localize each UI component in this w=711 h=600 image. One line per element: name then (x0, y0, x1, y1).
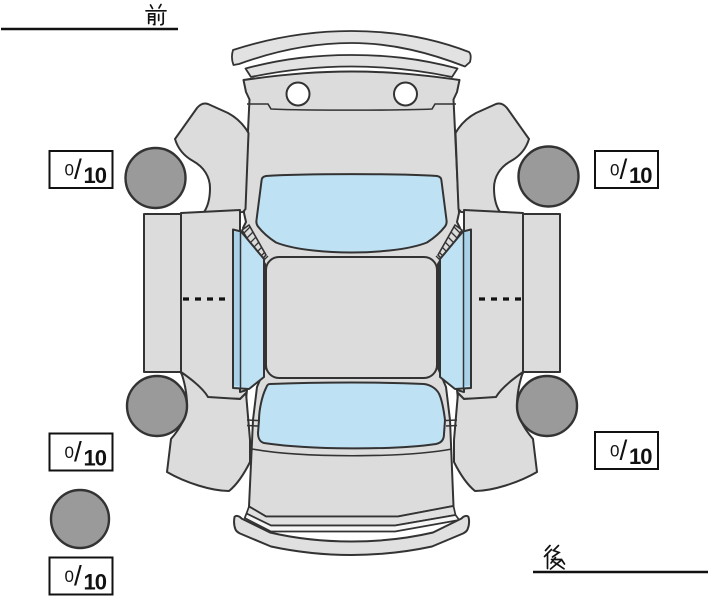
svg-text:10: 10 (84, 570, 107, 595)
svg-text:10: 10 (629, 444, 652, 469)
svg-text:/: / (74, 560, 82, 591)
svg-text:0: 0 (610, 161, 619, 180)
svg-text:/: / (620, 435, 628, 466)
svg-text:/: / (74, 436, 82, 467)
svg-text:0: 0 (65, 567, 74, 586)
svg-text:/: / (74, 154, 82, 185)
svg-text:/: / (620, 154, 628, 185)
svg-text:0: 0 (65, 443, 74, 462)
svg-text:10: 10 (84, 163, 107, 188)
svg-text:0: 0 (65, 161, 74, 180)
svg-text:10: 10 (629, 163, 652, 188)
svg-text:10: 10 (84, 446, 107, 471)
svg-text:0: 0 (610, 442, 619, 461)
